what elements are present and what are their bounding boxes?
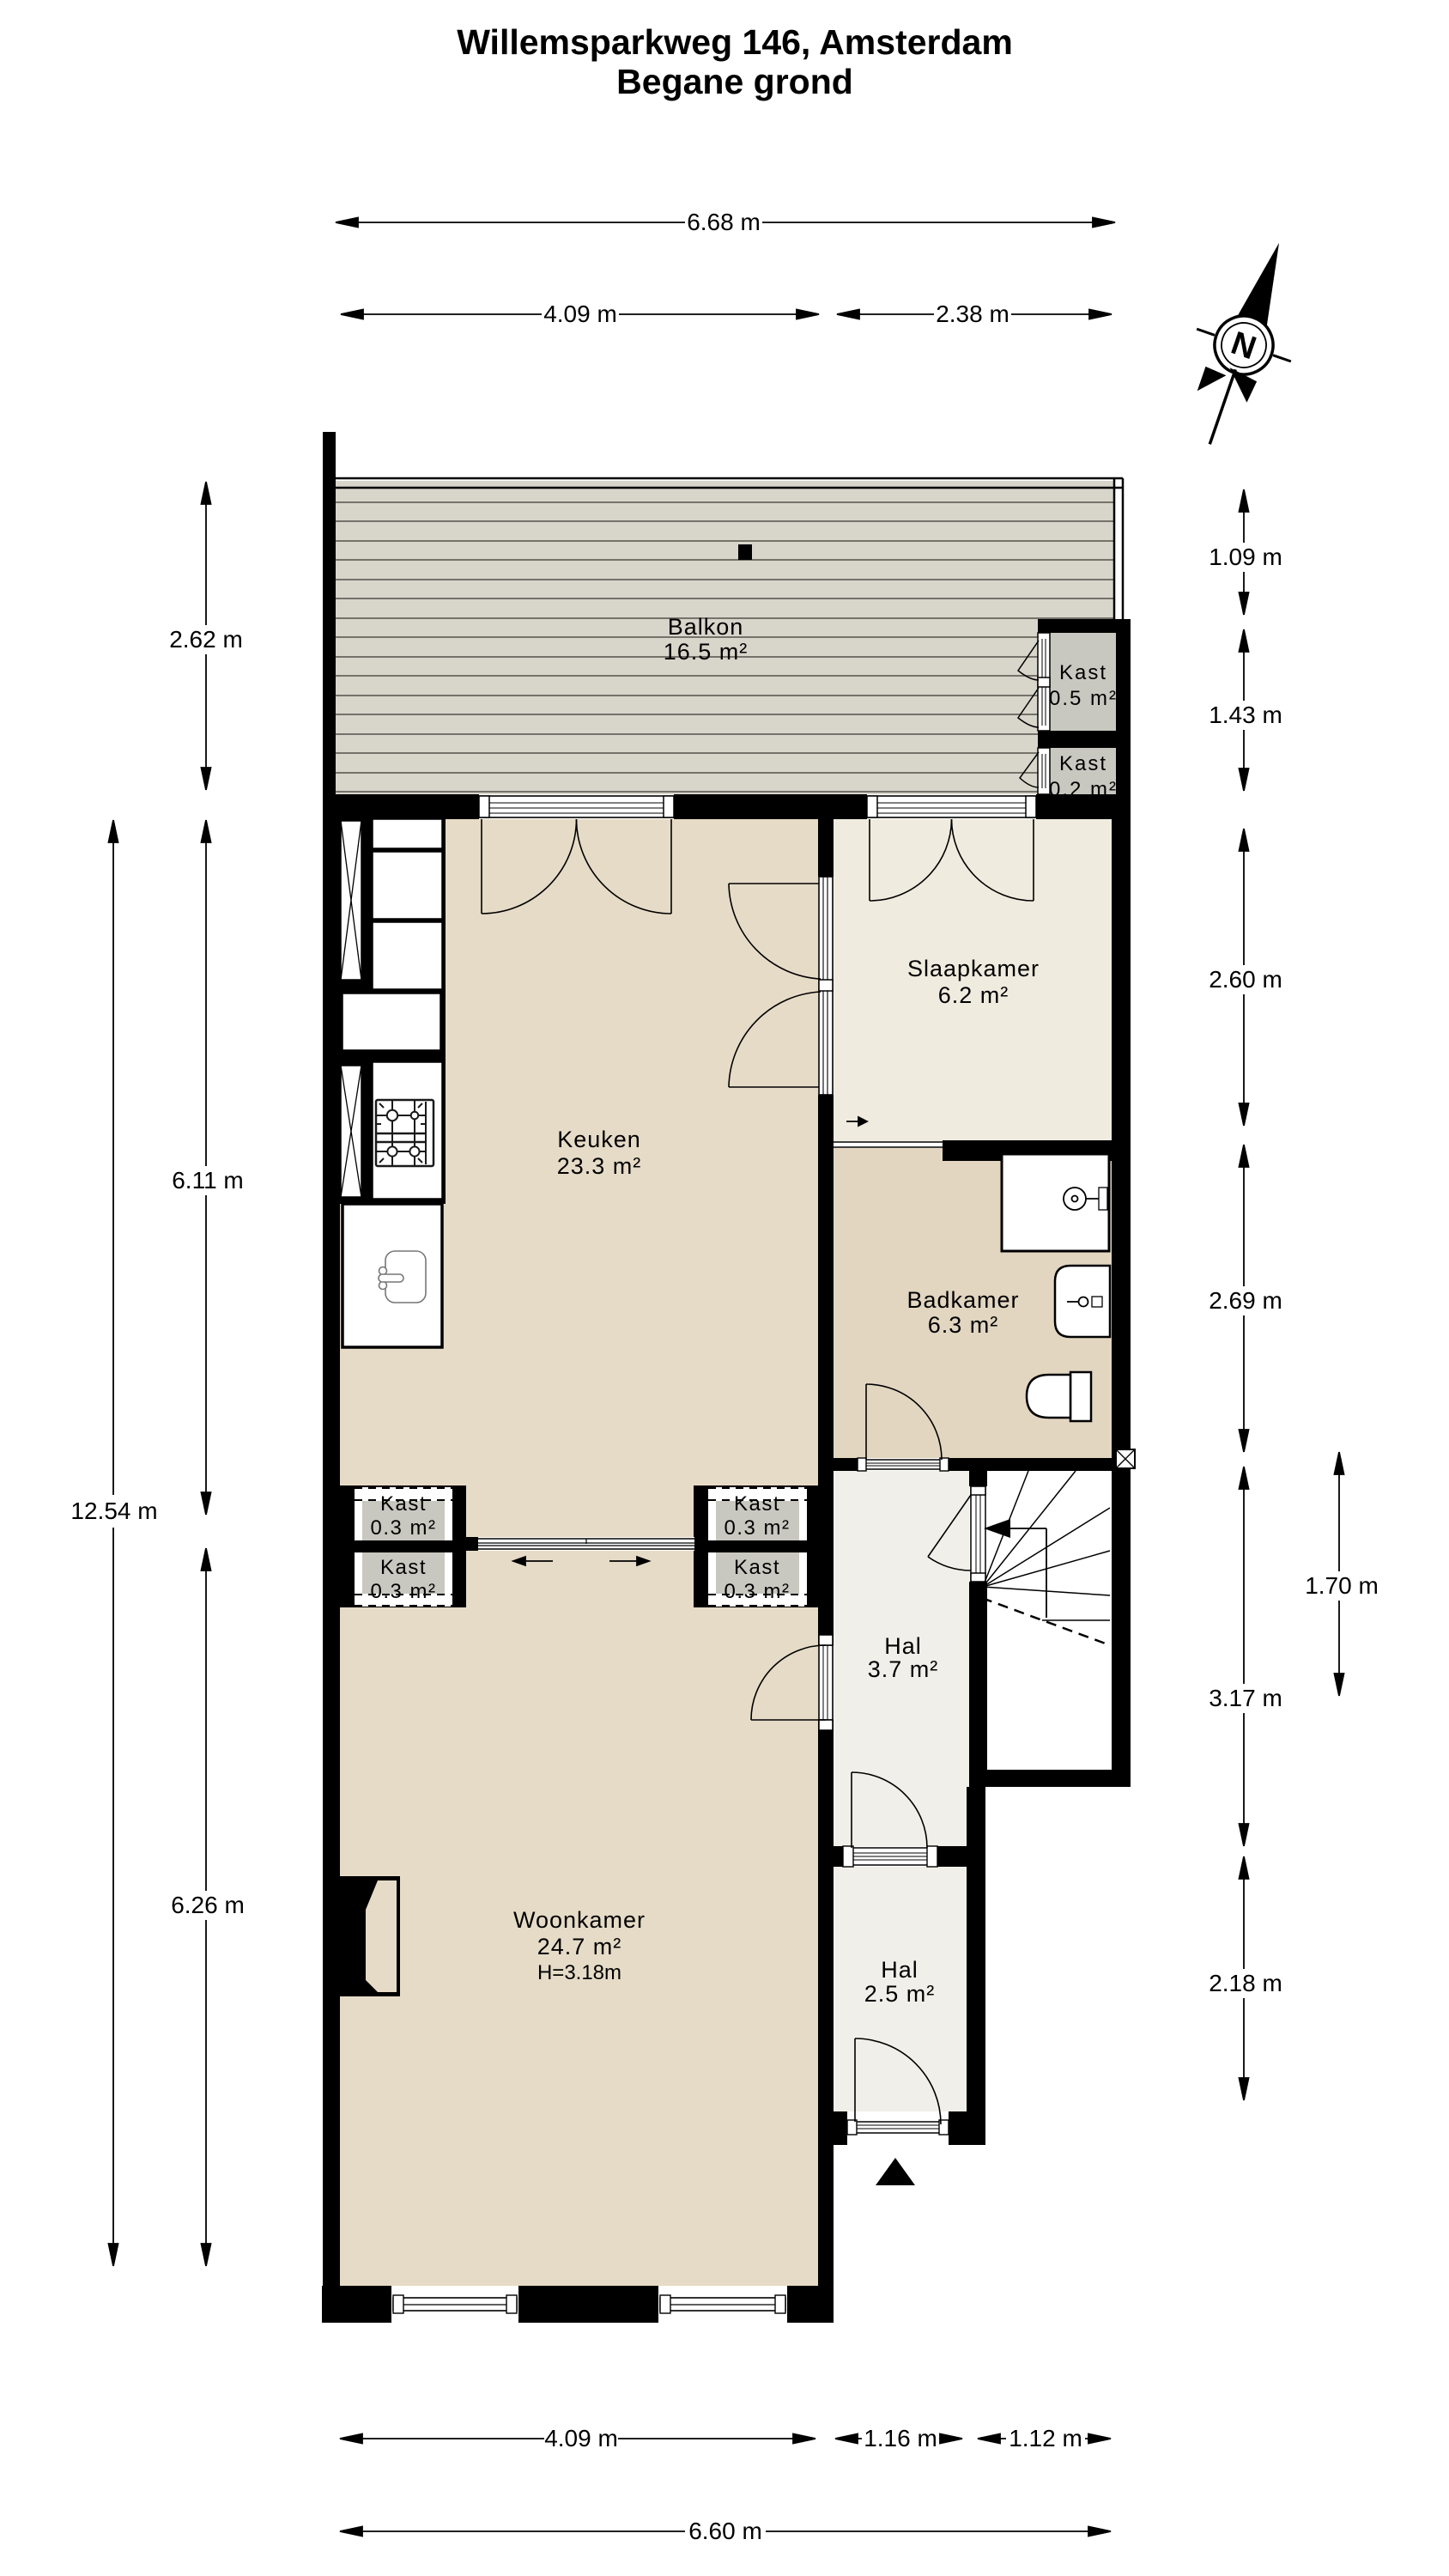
svg-text:0.3 m²: 0.3 m² xyxy=(724,1580,790,1603)
svg-text:Kast: Kast xyxy=(1059,661,1107,684)
svg-text:1.16 m: 1.16 m xyxy=(864,2425,937,2451)
svg-text:1.70 m: 1.70 m xyxy=(1305,1572,1379,1599)
svg-text:24.7 m²: 24.7 m² xyxy=(537,1934,622,1959)
svg-text:6.60 m: 6.60 m xyxy=(688,2518,762,2544)
svg-text:12.54 m: 12.54 m xyxy=(70,1498,157,1524)
svg-text:3.7 m²: 3.7 m² xyxy=(868,1656,939,1682)
svg-text:0.2 m²: 0.2 m² xyxy=(1049,778,1118,801)
svg-text:6.68 m: 6.68 m xyxy=(687,209,761,235)
svg-text:2.5 m²: 2.5 m² xyxy=(864,1981,936,2007)
svg-text:Hal: Hal xyxy=(884,1633,922,1659)
svg-text:1.09 m: 1.09 m xyxy=(1209,544,1282,570)
svg-text:16.5 m²: 16.5 m² xyxy=(664,639,749,665)
svg-text:Willemsparkweg 146, Amsterdam: Willemsparkweg 146, Amsterdam xyxy=(457,22,1013,62)
svg-text:Balkon: Balkon xyxy=(668,614,744,640)
svg-text:1.43 m: 1.43 m xyxy=(1209,702,1282,728)
svg-text:2.62 m: 2.62 m xyxy=(169,626,243,653)
svg-text:6.2 m²: 6.2 m² xyxy=(938,982,1009,1008)
svg-text:Kast: Kast xyxy=(380,1492,427,1516)
svg-text:0.5 m²: 0.5 m² xyxy=(1049,687,1118,710)
svg-text:Kast: Kast xyxy=(734,1492,780,1516)
svg-text:H=3.18m: H=3.18m xyxy=(537,1961,621,1984)
svg-text:6.3 m²: 6.3 m² xyxy=(928,1312,999,1338)
svg-text:4.09 m: 4.09 m xyxy=(543,301,617,327)
svg-text:Kast: Kast xyxy=(734,1556,780,1579)
svg-text:23.3 m²: 23.3 m² xyxy=(557,1153,642,1179)
svg-text:6.11 m: 6.11 m xyxy=(172,1167,244,1194)
svg-text:Hal: Hal xyxy=(881,1957,919,1983)
svg-text:0.3 m²: 0.3 m² xyxy=(724,1516,790,1540)
svg-text:2.18 m: 2.18 m xyxy=(1209,1970,1282,1996)
svg-text:Slaapkamer: Slaapkamer xyxy=(907,956,1040,981)
svg-text:3.17 m: 3.17 m xyxy=(1209,1685,1282,1711)
svg-text:Kast: Kast xyxy=(1059,752,1107,775)
svg-text:Badkamer: Badkamer xyxy=(906,1287,1019,1313)
svg-text:Kast: Kast xyxy=(380,1556,427,1579)
svg-text:6.26 m: 6.26 m xyxy=(171,1892,245,1918)
svg-text:0.3 m²: 0.3 m² xyxy=(370,1516,436,1540)
svg-text:2.69 m: 2.69 m xyxy=(1209,1287,1282,1314)
svg-text:Woonkamer: Woonkamer xyxy=(513,1907,646,1933)
svg-text:2.60 m: 2.60 m xyxy=(1209,966,1282,993)
svg-text:4.09 m: 4.09 m xyxy=(544,2425,618,2451)
svg-text:Keuken: Keuken xyxy=(557,1127,641,1152)
svg-text:2.38 m: 2.38 m xyxy=(936,301,1009,327)
svg-text:1.12 m: 1.12 m xyxy=(1009,2425,1082,2451)
svg-text:0.3 m²: 0.3 m² xyxy=(370,1580,436,1603)
svg-text:Begane grond: Begane grond xyxy=(616,62,853,101)
